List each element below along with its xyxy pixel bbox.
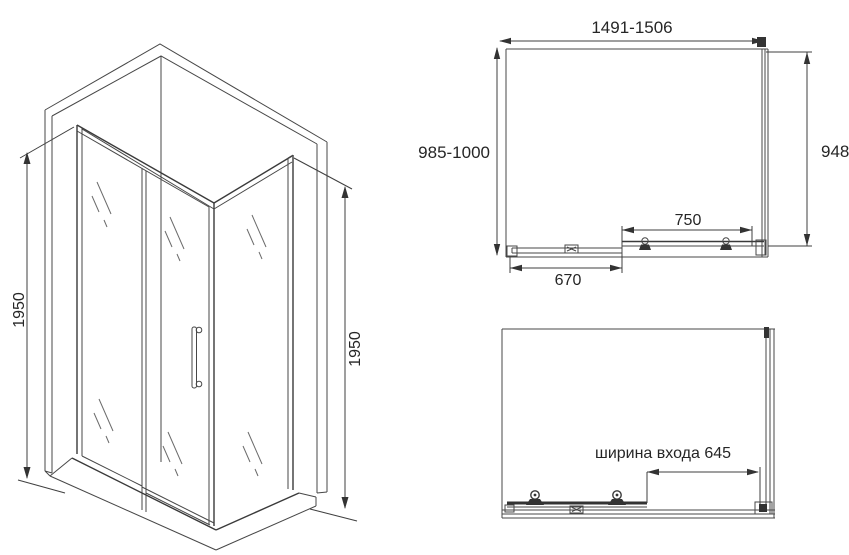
iso-walls — [45, 44, 327, 493]
iso-right-height-label: 1950 — [347, 331, 364, 367]
plan-door-width-label: 750 — [675, 212, 702, 229]
glass-reflection-marks — [92, 182, 266, 476]
front-entry-width-dimension: ширина входа 645 — [595, 445, 760, 504]
wall-profile-marker — [764, 327, 769, 338]
arrow-left-icon — [510, 265, 522, 271]
front-rail-assembly — [502, 491, 775, 514]
arrow-up-icon — [342, 186, 349, 198]
top-view: 1491-1506 985-1000 948 750 — [418, 18, 849, 289]
arrow-down-icon — [342, 497, 349, 509]
front-view: ширина входа 645 — [502, 327, 775, 518]
plan-outline — [506, 37, 768, 257]
arrow-left-icon — [499, 38, 511, 44]
roller-icon — [526, 491, 544, 505]
plan-fixed-panel-label: 670 — [555, 272, 582, 289]
plan-fixed-panel-dimension: 670 — [510, 255, 622, 289]
arrow-down-icon — [494, 244, 500, 256]
plan-rail-assembly — [507, 238, 766, 256]
plan-depth-label: 985-1000 — [418, 143, 490, 162]
roller-icon — [608, 491, 626, 505]
iso-left-height-dimension: 1950 — [11, 127, 74, 493]
iso-right-height-dimension: 1950 — [294, 158, 364, 521]
iso-frame — [77, 125, 293, 526]
arrow-down-icon — [804, 234, 810, 246]
arrow-right-icon — [610, 265, 622, 271]
door-stop-marker — [759, 504, 767, 512]
door-handle — [192, 327, 202, 388]
arrow-right-icon — [740, 227, 752, 233]
shower-enclosure-drawing: 1950 1950 — [0, 0, 849, 555]
arrow-right-icon — [747, 469, 759, 475]
plan-width-dimension: 1491-1506 — [499, 18, 764, 44]
front-outline — [502, 327, 775, 518]
plan-side-panel-label: 948 — [821, 142, 849, 161]
shower-tray — [45, 458, 316, 550]
arrow-up-icon — [24, 152, 31, 164]
arrow-up-icon — [494, 47, 500, 59]
plan-side-panel-dimension: 948 — [766, 52, 849, 246]
roller-icon — [639, 238, 651, 250]
plan-depth-dimension: 985-1000 — [418, 47, 500, 256]
isometric-view: 1950 1950 — [11, 44, 364, 550]
arrow-up-icon — [804, 52, 810, 64]
arrow-down-icon — [24, 467, 31, 479]
front-entry-width-label: ширина входа 645 — [595, 445, 731, 462]
iso-left-height-label: 1950 — [11, 292, 28, 328]
roller-icon — [720, 238, 732, 250]
arrow-left-icon — [647, 469, 659, 475]
plan-width-label: 1491-1506 — [591, 18, 672, 37]
arrow-left-icon — [622, 227, 634, 233]
technical-drawing-page: 1950 1950 — [0, 0, 849, 555]
